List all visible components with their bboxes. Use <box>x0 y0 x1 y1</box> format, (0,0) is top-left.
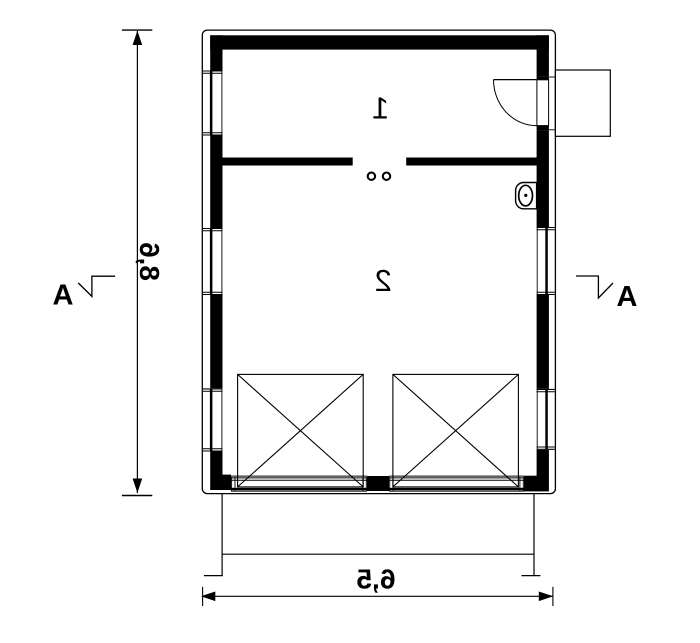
svg-text:A: A <box>617 281 638 313</box>
svg-text:A: A <box>53 280 74 312</box>
svg-text:1: 1 <box>372 91 389 126</box>
svg-text:6,5: 6,5 <box>357 564 396 595</box>
svg-text:2: 2 <box>375 263 392 298</box>
svg-text:8,6: 8,6 <box>134 242 165 281</box>
